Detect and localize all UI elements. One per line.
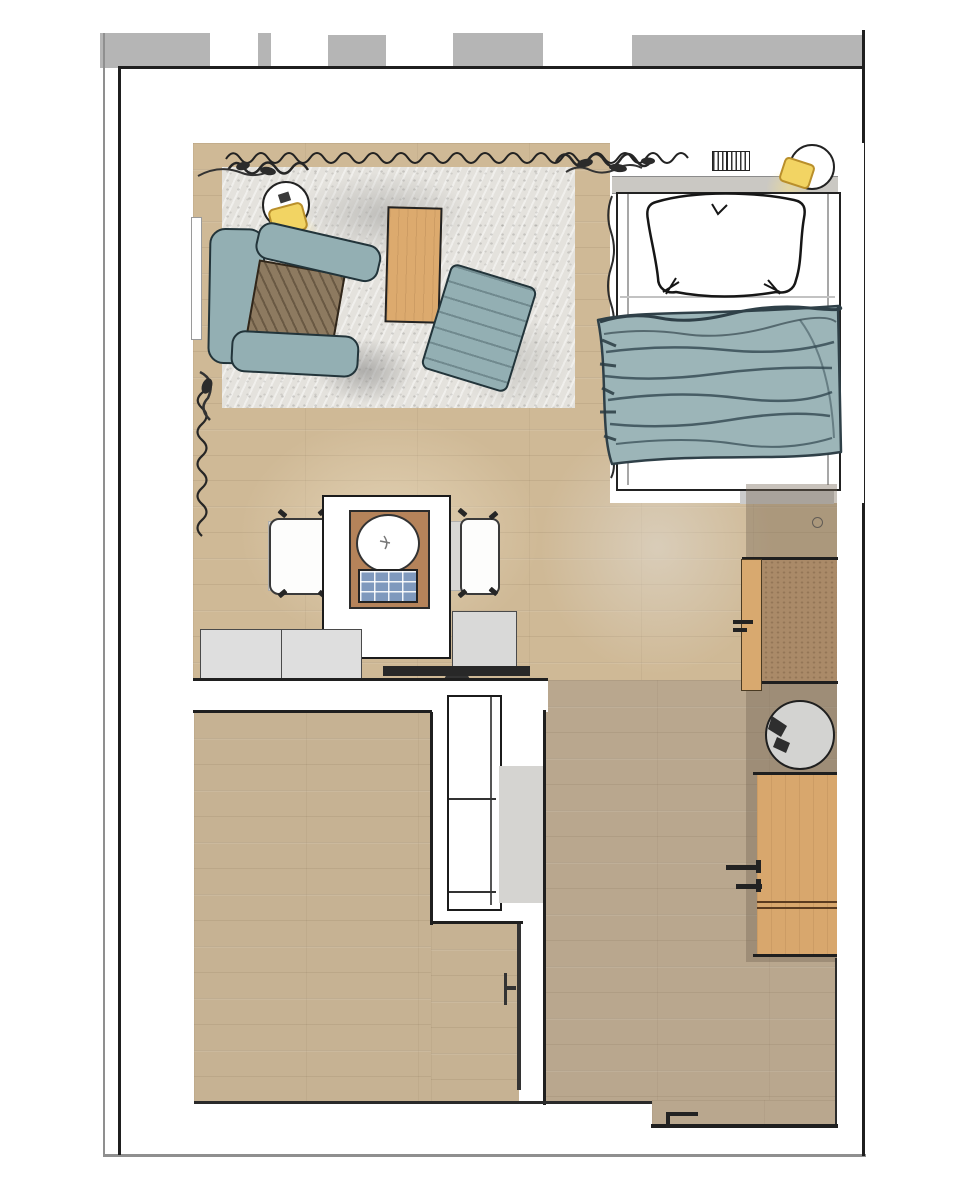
wall-edge-under-shelf: [430, 921, 523, 924]
floor-bottom-edge-right: [651, 1124, 838, 1128]
hall-right-edge: [835, 958, 837, 1128]
dining-chair-right: [460, 518, 500, 595]
door: [517, 924, 521, 1090]
round-plate: [356, 514, 420, 573]
armchair: [198, 217, 385, 389]
desk-chair-handle-2: [733, 628, 747, 632]
floor-bottom-edge-left: [194, 1101, 652, 1104]
wall-segment-tab-4: [453, 33, 543, 68]
vent-icon: [712, 151, 750, 171]
window-left: [191, 217, 202, 340]
threshold-mark-bar: [668, 1112, 698, 1116]
floor-lower-room: [194, 712, 431, 1104]
wood-desk-handle-1-nub: [756, 860, 761, 873]
cabinet-1: [200, 629, 282, 683]
page-frame-bottom: [103, 1154, 866, 1157]
door-handle-nub: [505, 986, 516, 990]
wood-desk-divider-2: [757, 907, 837, 909]
stool: [765, 700, 835, 770]
desk-chair: [741, 559, 762, 691]
bed-rail-right: [827, 194, 829, 485]
tv: [383, 666, 530, 676]
vent-divider: [726, 152, 728, 170]
hob-grid: [358, 569, 418, 603]
wall-left: [118, 66, 121, 1155]
wall-segment-tab-1: [100, 33, 210, 68]
armchair-arm-bottom: [230, 330, 360, 379]
cabinet-2: [281, 629, 362, 683]
wood-desk-handle-1: [726, 865, 760, 870]
bed-fold-line: [620, 296, 835, 298]
page-frame-left: [103, 33, 105, 1155]
wall-shelf-divider-2: [449, 891, 496, 893]
cork-desk: [757, 560, 837, 681]
wall-top: [118, 66, 865, 69]
desk-chair-handle: [733, 620, 753, 624]
bed-rail-left: [627, 194, 629, 485]
wood-desk-handle-2-nub: [756, 879, 761, 892]
wall-segment-tab-2: [258, 33, 271, 68]
wall-segment-tab-3: [328, 35, 386, 68]
bed: [616, 192, 841, 491]
coffee-table: [384, 206, 442, 323]
wood-desk: [757, 775, 837, 956]
cabinet-3: [452, 611, 517, 674]
lower-room-top-edge: [193, 710, 432, 713]
lower-room-right-wall: [430, 712, 433, 925]
hall-left-wall: [543, 710, 546, 1105]
wall-segment-tab-5: [632, 35, 863, 68]
floor-plan: [0, 0, 960, 1190]
floor-lower-room-extension: [431, 923, 519, 1104]
wall-shelf-shadow: [499, 766, 543, 903]
wall-shelf-rail: [490, 697, 492, 905]
interior-wall-band-top: [193, 678, 548, 681]
wall-shelf: [447, 695, 502, 911]
wall-shelf-divider-1: [449, 798, 496, 800]
wood-desk-divider: [757, 901, 837, 903]
wood-desk-bottom-edge: [753, 954, 837, 957]
